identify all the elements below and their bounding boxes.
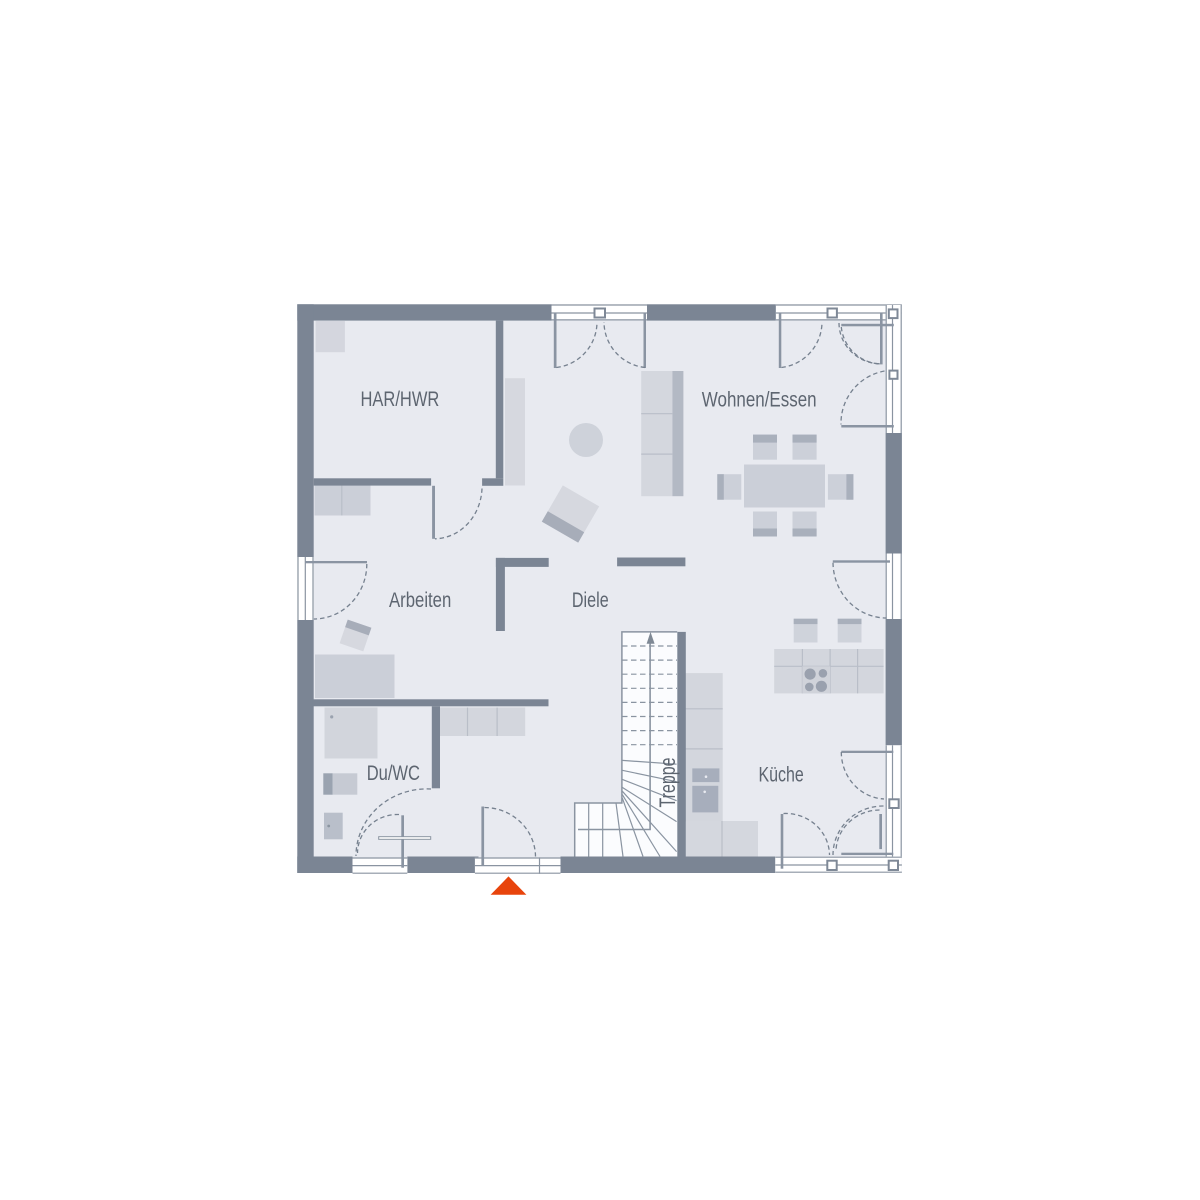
svg-text:Küche: Küche bbox=[759, 763, 804, 787]
svg-text:Arbeiten: Arbeiten bbox=[389, 588, 451, 612]
svg-text:HAR/HWR: HAR/HWR bbox=[361, 387, 440, 411]
svg-text:Du/WC: Du/WC bbox=[367, 761, 420, 785]
svg-text:Treppe: Treppe bbox=[655, 758, 680, 808]
svg-text:Diele: Diele bbox=[572, 588, 609, 612]
svg-text:Wohnen/Essen: Wohnen/Essen bbox=[702, 388, 817, 412]
